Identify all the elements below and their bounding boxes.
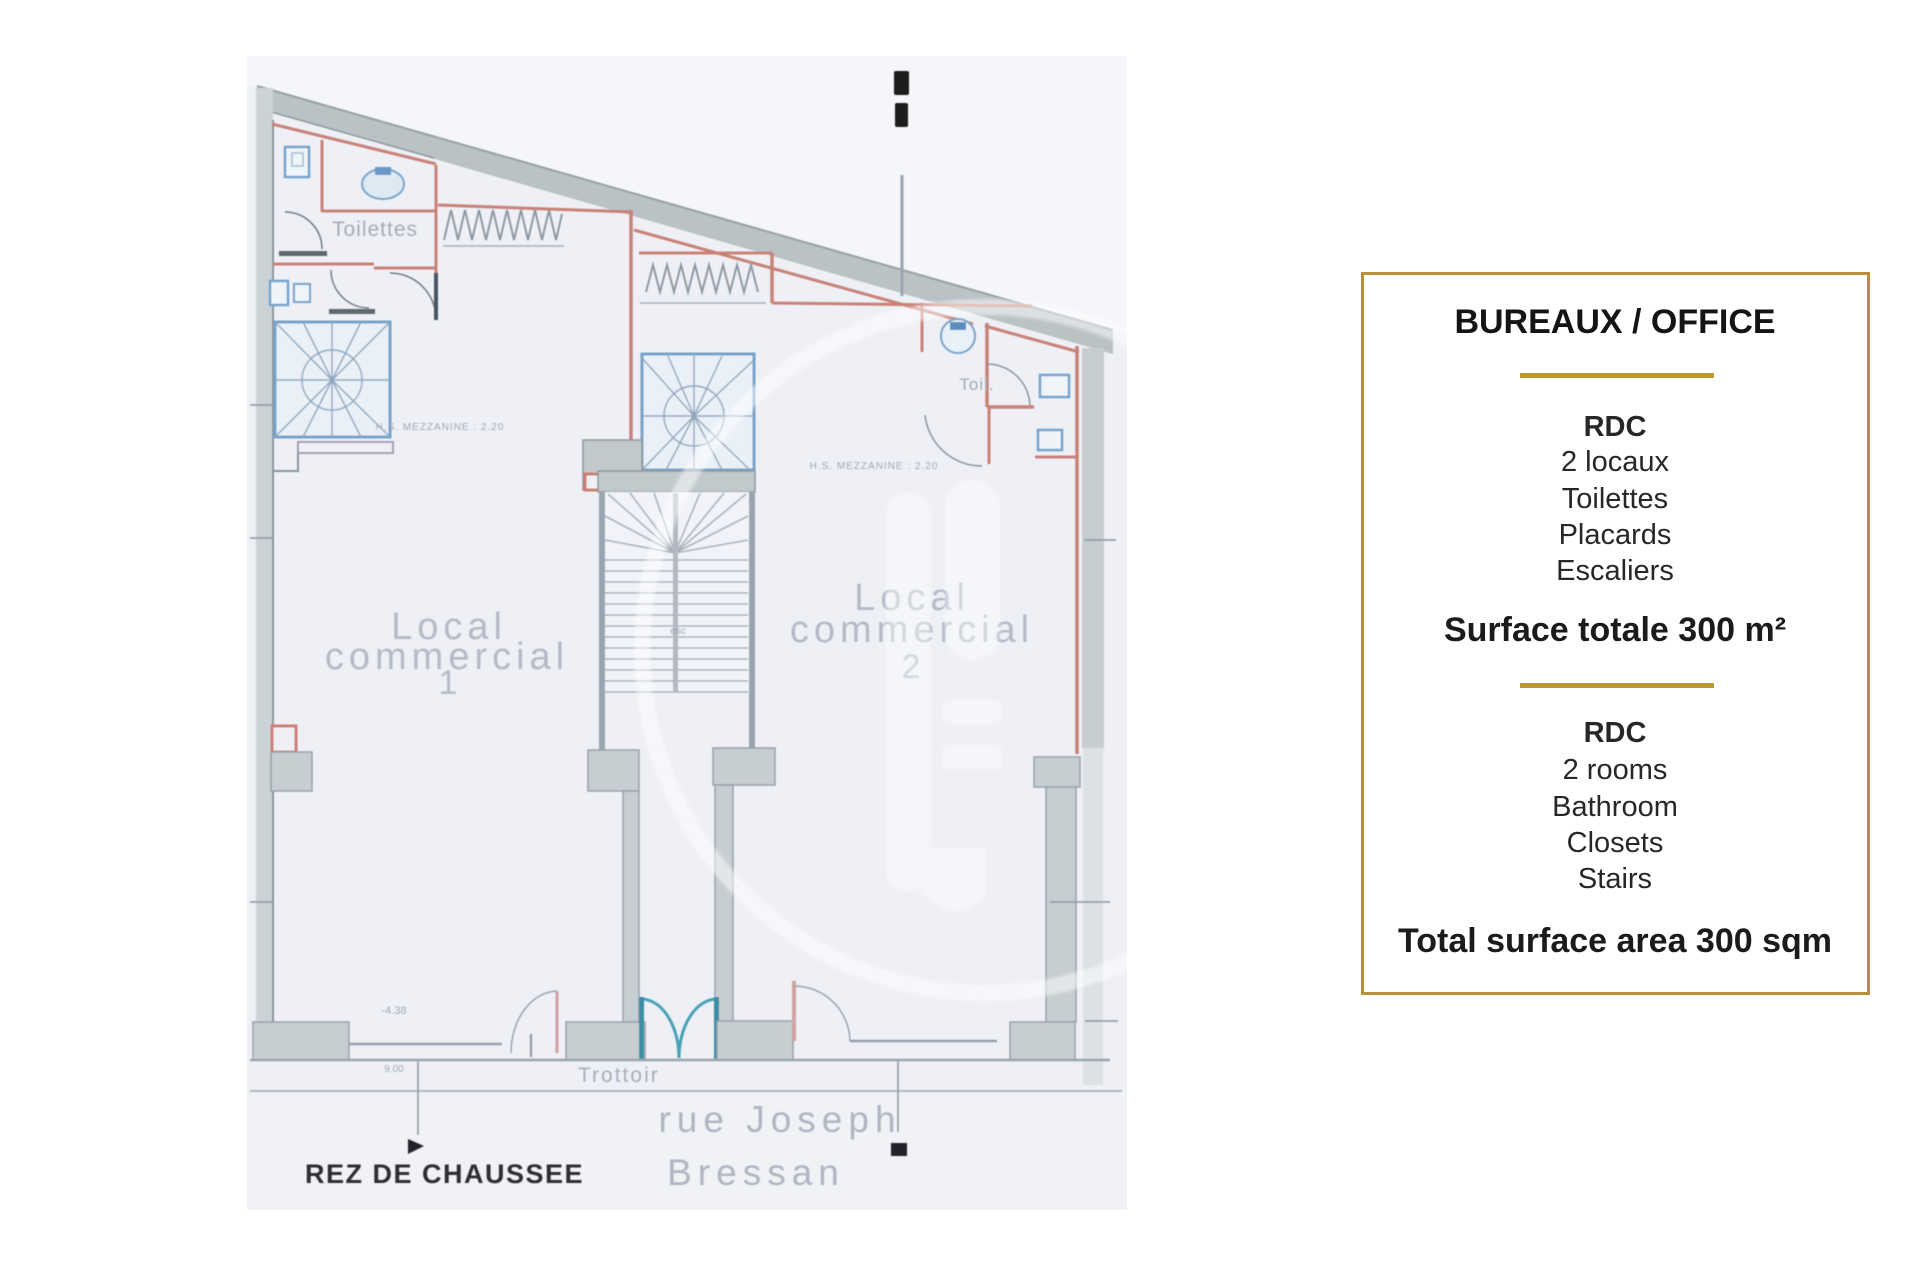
svg-text:-4.38: -4.38 bbox=[381, 1005, 406, 1017]
svg-text:1: 1 bbox=[439, 664, 458, 702]
svg-text:9.00: 9.00 bbox=[384, 1064, 404, 1075]
svg-text:REZ DE CHAUSSEE: REZ DE CHAUSSEE bbox=[305, 1159, 584, 1189]
svg-text:H.S. MEZZANINE : 2.20: H.S. MEZZANINE : 2.20 bbox=[376, 422, 505, 433]
svg-text:H.S. MEZZANINE : 2.20: H.S. MEZZANINE : 2.20 bbox=[810, 461, 939, 472]
svg-text:Toil.: Toil. bbox=[959, 375, 994, 394]
svg-text:Bressan: Bressan bbox=[667, 1152, 845, 1193]
svg-text:Toilettes: Toilettes bbox=[332, 218, 418, 241]
svg-text:esc: esc bbox=[670, 626, 686, 637]
svg-text:Trottoir: Trottoir bbox=[578, 1064, 660, 1087]
svg-text:rue Joseph: rue Joseph bbox=[658, 1099, 901, 1140]
